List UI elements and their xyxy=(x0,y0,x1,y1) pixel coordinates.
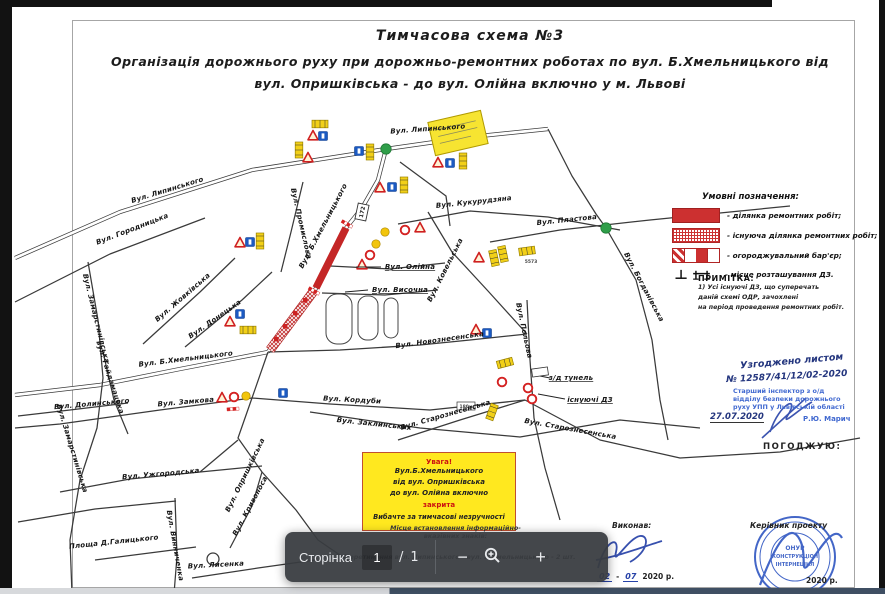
pdf-toolbar: Сторінка / 1 − + xyxy=(285,532,608,582)
inspector-stamp-line: руху УПП у Львівській області xyxy=(733,403,845,411)
street-label: Вул. Винниченка xyxy=(165,510,185,582)
notice-line: від вул. Опришківська xyxy=(363,477,515,488)
legend-label: - огороджувальний бар'єр; xyxy=(727,251,842,260)
street-labels: Вул. Липинського Вул. Липинського Вул. Г… xyxy=(54,122,666,581)
legend-swatch-repair xyxy=(672,208,720,223)
legend-swatch-barrier xyxy=(672,248,720,263)
inspector-stamp-text: Старший інспектор з о/д відділу безпеки … xyxy=(733,387,845,411)
zoom-fit-button[interactable] xyxy=(480,542,506,572)
note-title: ПРИМІТКА: xyxy=(698,274,873,283)
street-label: Вул. Височна xyxy=(372,286,428,294)
page-label: Сторінка xyxy=(299,550,352,565)
street-label: Вул. Донецька xyxy=(187,298,243,340)
street-label: Вул. Польова xyxy=(514,302,534,359)
street-label: Вул. Замарстинівська xyxy=(81,273,111,364)
road-closed-notice: Увага! Вул.Б.Хмельницького від вул. Опри… xyxy=(362,452,516,531)
street-label: Вул. Замарстинівська xyxy=(55,403,90,493)
legend-label: - ділянка ремонтних робіт; xyxy=(727,211,841,220)
stamp-text: КОНСТРУКЦІОН xyxy=(772,554,818,560)
scan-edge-top xyxy=(0,0,772,7)
legend-title: Умовні позначення: xyxy=(702,192,870,202)
note-line: 1) Усі існуючі ДЗ, що суперечать xyxy=(698,283,873,293)
manager-label: Керівник проекту xyxy=(750,521,827,530)
inspector-stamp-line: Старший інспектор з о/д xyxy=(733,387,845,395)
executor-label: Виконав: xyxy=(612,521,651,530)
info-sign-note-line: Місце встановлення інформаційно- xyxy=(348,524,563,532)
bottom-bar xyxy=(0,588,885,594)
magnifier-plus-icon xyxy=(484,547,501,564)
street-label: Вул. Богданівська xyxy=(622,251,665,323)
repair-zone xyxy=(227,220,353,411)
map-note-label: з/д тунель xyxy=(548,374,593,382)
page-subtitle-2: вул. Опришківська - до вул. Олійна включ… xyxy=(95,76,845,91)
stamp-year: 2020 р. xyxy=(806,576,838,585)
street-label: Вул. Лисенка xyxy=(187,560,244,571)
approval-name: Р.Ю. Марич xyxy=(803,415,851,423)
page-number-input[interactable] xyxy=(362,545,392,570)
legend: Умовні позначення: - ділянка ремонтних р… xyxy=(672,192,870,286)
notice-line: до вул. Олійна включно xyxy=(363,488,515,499)
legend-swatch-existing xyxy=(672,228,720,243)
street-label: Вул. Ужгородська xyxy=(122,467,200,482)
scan-edge-right xyxy=(879,0,885,594)
notice-heading: Увага! xyxy=(363,458,515,466)
street-label: Вул. Жовківська xyxy=(153,271,212,323)
notice-closed: закрита xyxy=(363,500,515,511)
executor-date-month: 07 xyxy=(623,572,638,582)
sign-code-label: 5573 xyxy=(525,259,538,265)
page-title: Тимчасова схема №3 xyxy=(150,28,790,44)
page-subtitle-1: Організація дорожнього руху при дорожньо… xyxy=(95,54,845,69)
notice-line: Вул.Б.Хмельницького xyxy=(363,466,515,477)
note-block: ПРИМІТКА: 1) Усі існуючі ДЗ, що супереча… xyxy=(698,274,873,312)
street-label: Площа Д.Галицького xyxy=(69,533,159,550)
inspector-stamp-line: відділу безпеки дорожнього xyxy=(733,395,845,403)
page-separator: / xyxy=(399,550,403,565)
map-note-label: існуючі ДЗ xyxy=(567,396,613,404)
total-pages-label: 1 xyxy=(410,550,418,565)
info-board xyxy=(428,110,488,155)
approval-date: 27.07.2020 xyxy=(710,412,764,423)
note-line: на період проведення ремонтних робіт. xyxy=(698,303,873,313)
legend-label: - існуюча ділянка ремонтних робіт; xyxy=(727,231,877,240)
street-label: Вул. Кукурудзяна xyxy=(435,194,512,210)
street-label: Вул. Пластова xyxy=(536,213,597,227)
agree-label: ПОГОДЖУЮ: xyxy=(763,442,841,452)
pdf-viewer-screen: 172 180м 5573 Вул. Липинського Вул. Липи… xyxy=(0,0,885,594)
notice-apology: Вибачте за тимчасові незручності xyxy=(363,513,515,521)
toolbar-divider xyxy=(435,540,436,574)
street-label: Вул. Олійна xyxy=(385,263,435,271)
zoom-in-button[interactable]: + xyxy=(528,542,554,572)
zoom-out-button[interactable]: − xyxy=(450,542,476,572)
street-label: Вул. Заклинських xyxy=(336,416,412,432)
executor-date: 02 - 07 2020 р. xyxy=(597,572,674,582)
scan-edge-left xyxy=(0,0,12,594)
note-line: даній схемі ОДР, зачохлені xyxy=(698,293,873,303)
executor-date-year: 2020 р. xyxy=(642,572,674,581)
